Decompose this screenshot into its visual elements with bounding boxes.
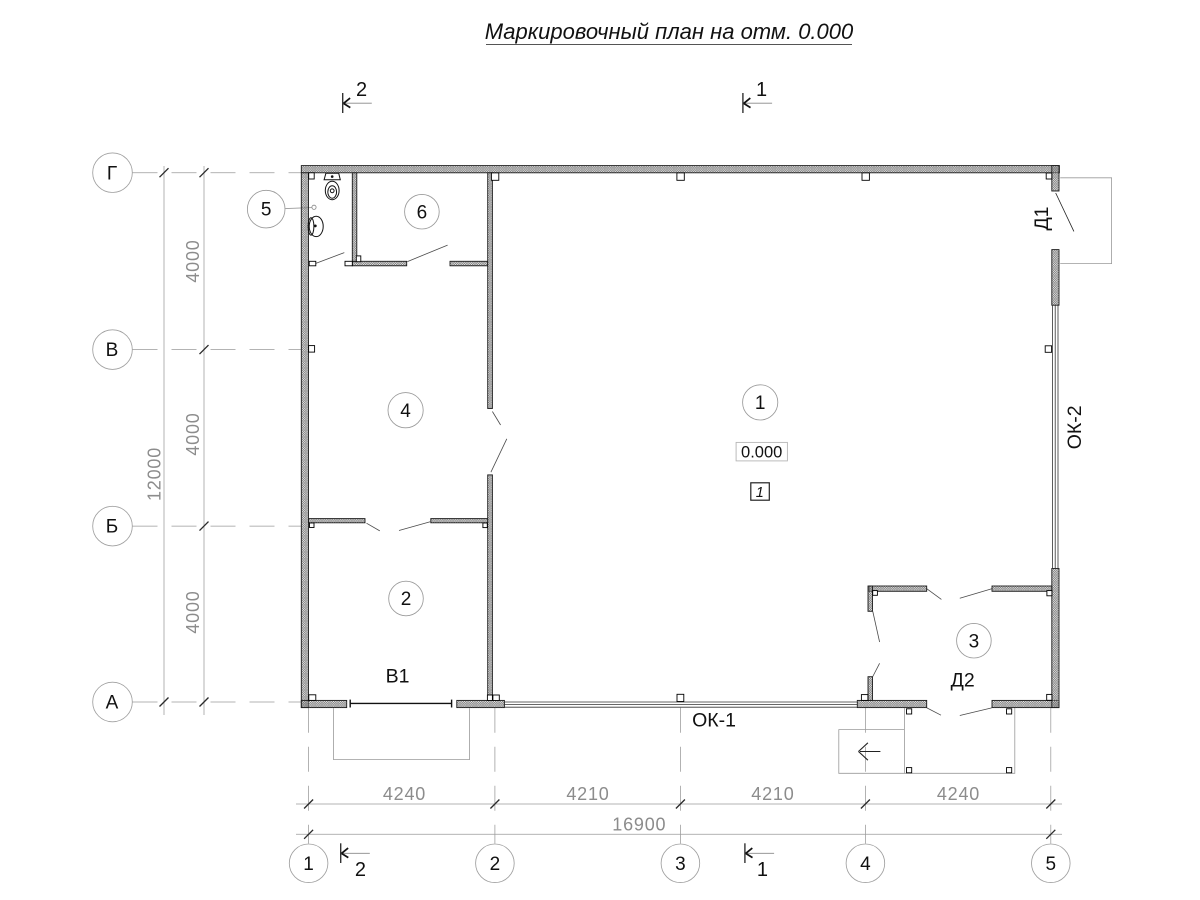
svg-text:Г: Г [107,163,117,184]
svg-text:2: 2 [356,79,367,101]
svg-text:6: 6 [417,202,428,223]
svg-text:3: 3 [969,631,980,652]
svg-text:2: 2 [490,854,501,875]
svg-text:Д1: Д1 [1031,206,1053,230]
svg-text:В1: В1 [386,666,410,688]
svg-text:4000: 4000 [183,590,203,633]
svg-text:А: А [106,693,119,714]
svg-text:0.000: 0.000 [741,443,782,461]
svg-text:5: 5 [1046,854,1057,875]
svg-text:1: 1 [756,485,764,501]
svg-text:1: 1 [755,393,766,414]
svg-text:3: 3 [675,854,686,875]
svg-text:12000: 12000 [145,447,165,501]
svg-text:1: 1 [756,79,767,101]
svg-text:1: 1 [757,859,768,881]
svg-text:5: 5 [261,200,272,221]
svg-text:4: 4 [400,401,411,422]
svg-text:4000: 4000 [183,412,203,455]
svg-text:4240: 4240 [937,784,980,804]
svg-text:ОК-1: ОК-1 [692,710,736,732]
svg-text:Д2: Д2 [951,670,975,692]
svg-text:4: 4 [860,854,871,875]
svg-text:4210: 4210 [566,784,609,804]
svg-text:Маркировочный план на отм. 0.0: Маркировочный план на отм. 0.000 [485,19,854,44]
svg-text:2: 2 [401,589,412,610]
svg-text:В: В [106,340,119,361]
svg-text:16900: 16900 [612,815,666,835]
svg-text:4240: 4240 [383,784,426,804]
svg-text:4210: 4210 [751,784,794,804]
svg-text:4000: 4000 [183,239,203,282]
svg-text:ОК-2: ОК-2 [1064,405,1086,449]
svg-text:2: 2 [355,859,366,881]
svg-text:1: 1 [303,854,314,875]
svg-text:Б: Б [106,517,118,538]
